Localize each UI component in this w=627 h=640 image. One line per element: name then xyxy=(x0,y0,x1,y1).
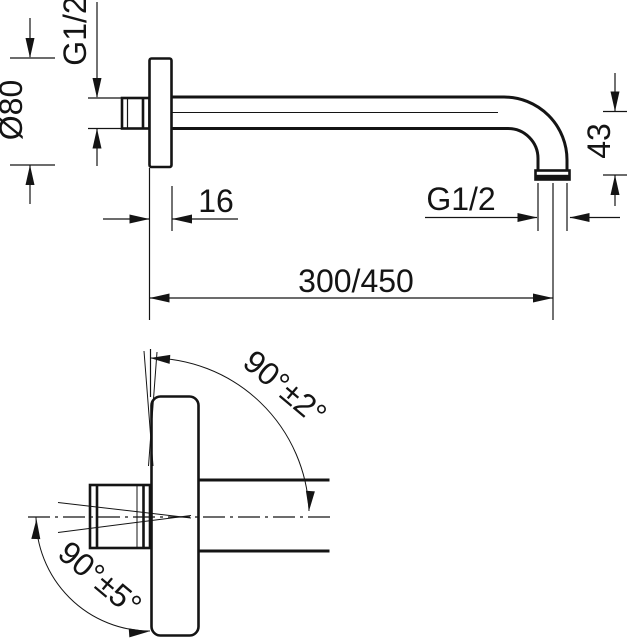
front-view: Ø80 G1/2 16 xyxy=(0,0,627,320)
shower-arm-pipe-side xyxy=(200,480,330,551)
outlet-rim xyxy=(536,171,570,180)
dim-flange-diameter: Ø80 xyxy=(0,18,55,204)
outlet-drop-label: 43 xyxy=(581,123,617,159)
shower-arm-pipe xyxy=(172,97,568,170)
inlet-thread-nipple xyxy=(122,98,150,129)
arm-length-label: 300/450 xyxy=(298,263,414,299)
wall-flange-front xyxy=(150,59,172,168)
side-view: 90°±2° 90°±5° xyxy=(28,343,335,638)
dim-outlet-thread: G1/2 xyxy=(425,181,620,231)
outlet-thread-label: G1/2 xyxy=(426,181,495,217)
technical-drawing-page: Ø80 G1/2 16 xyxy=(0,0,627,640)
dim-inlet-thread: G1/2 xyxy=(57,0,122,166)
dim-flange-thickness: 16 xyxy=(103,168,238,320)
inlet-thread-label: G1/2 xyxy=(57,0,93,66)
flange-diameter-label: Ø80 xyxy=(0,80,29,140)
flange-thickness-label: 16 xyxy=(198,183,234,219)
dim-outlet-drop: 43 xyxy=(581,73,627,206)
shower-arm-drawing: Ø80 G1/2 16 xyxy=(0,0,627,640)
outlet-angle-label: 90°±2° xyxy=(237,343,334,433)
